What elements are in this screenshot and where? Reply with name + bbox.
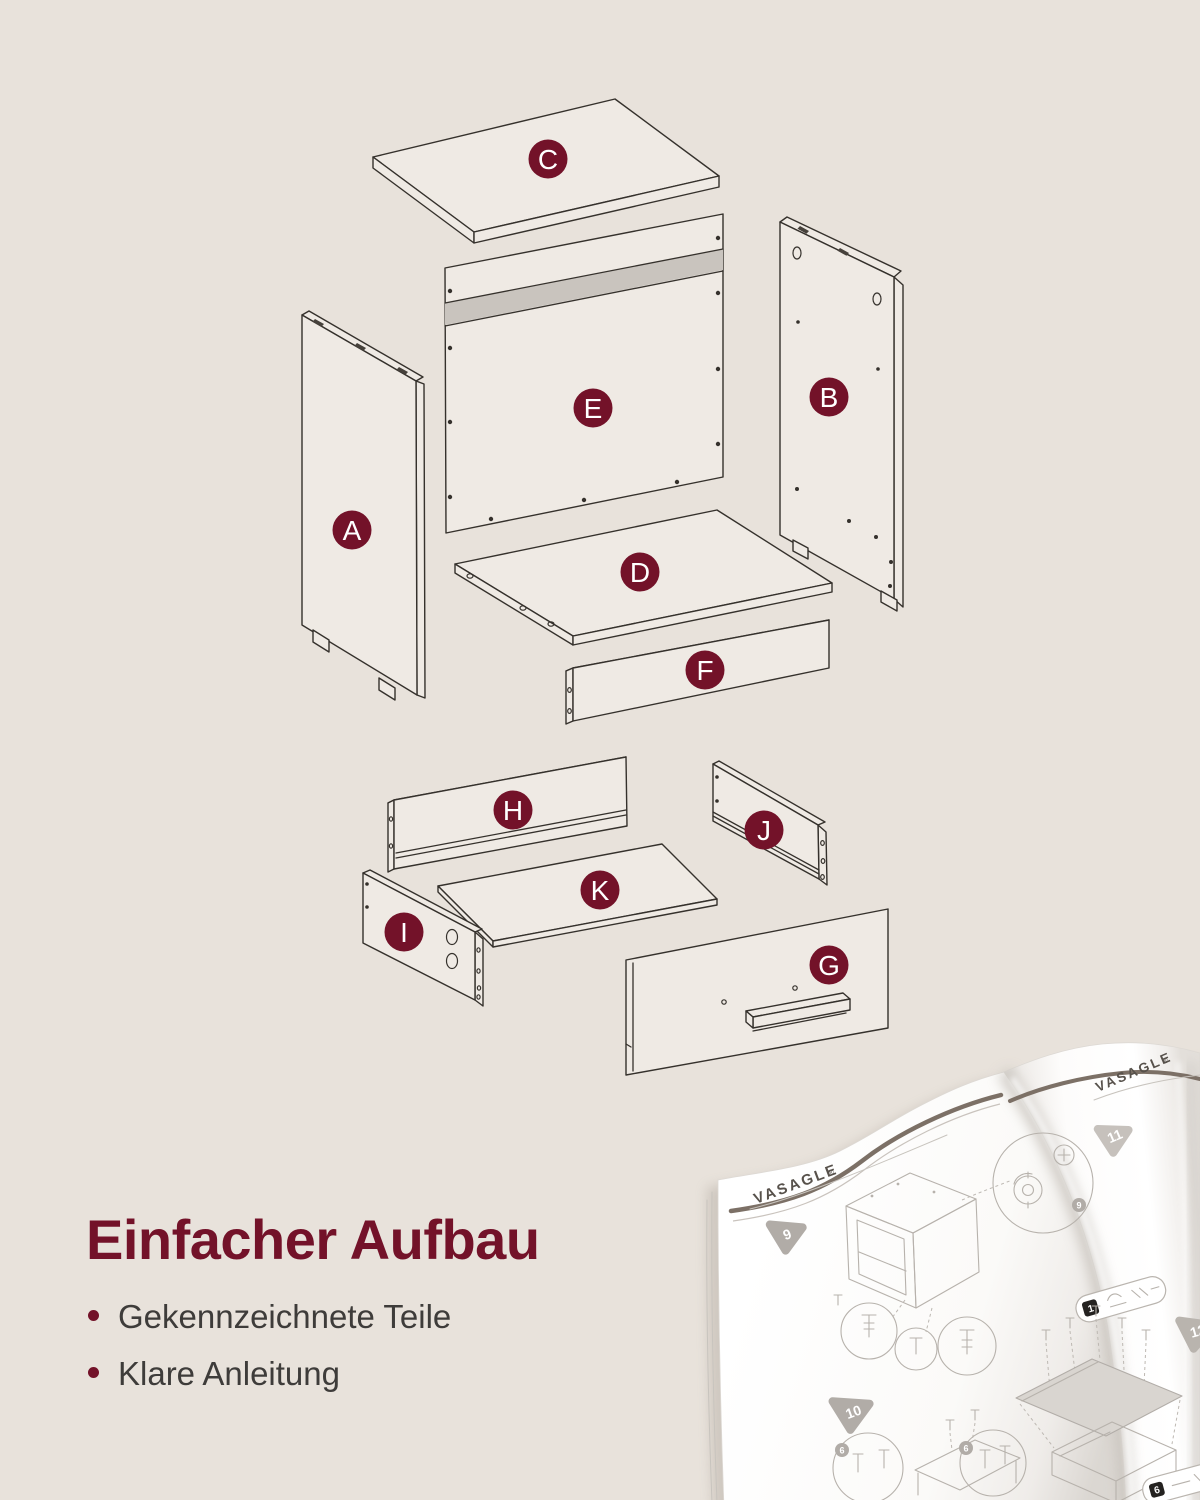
detail-badge-9: 9	[1076, 1201, 1081, 1211]
feature-list: Gekennzeichnete Teile Klare Anleitung	[86, 1296, 726, 1394]
panel-side-a	[302, 311, 425, 700]
badge-a-letter: A	[343, 515, 362, 546]
panel-drawer-front-g	[626, 909, 888, 1075]
instruction-manual: VASAGLE ® 9 9	[707, 1043, 1200, 1500]
badge-f-letter: F	[696, 655, 713, 686]
product-infographic: C E B A D F H J K I G	[0, 0, 1200, 1500]
bullet-dot	[88, 1367, 99, 1378]
badge-c: C	[529, 140, 568, 179]
badge-e-letter: E	[584, 393, 603, 424]
feature-text-2: Klare Anleitung	[118, 1353, 340, 1394]
badge-i-letter: I	[400, 917, 408, 948]
badge-g-letter: G	[818, 950, 840, 981]
panel-drawer-bottom-k	[438, 844, 717, 947]
exploded-diagram: C E B A D F H J K I G	[302, 99, 903, 1075]
badge-h: H	[494, 791, 533, 830]
badge-k-letter: K	[591, 875, 610, 906]
bullet-dot	[88, 1310, 99, 1321]
badge-k: K	[581, 871, 620, 910]
badge-j-letter: J	[757, 815, 771, 846]
detail-badge-6-right: 6	[963, 1444, 968, 1454]
badge-a: A	[333, 511, 372, 550]
panel-side-b	[780, 217, 903, 611]
badge-d-letter: D	[630, 557, 650, 588]
badge-i: I	[385, 913, 424, 952]
feature-text-1: Gekennzeichnete Teile	[118, 1296, 451, 1337]
page-curl-shading	[1190, 1062, 1198, 1500]
badge-h-letter: H	[503, 795, 523, 826]
caption-block: Einfacher Aufbau Gekennzeichnete Teile K…	[86, 1208, 726, 1409]
detail-badge-6-left: 6	[839, 1446, 844, 1456]
badge-b-letter: B	[820, 382, 839, 413]
badge-j: J	[745, 811, 784, 850]
badge-d: D	[621, 553, 660, 592]
badge-g: G	[810, 946, 849, 985]
feature-item-2: Klare Anleitung	[86, 1353, 726, 1394]
badge-b: B	[810, 378, 849, 417]
panel-back-e	[445, 214, 723, 533]
badge-f: F	[686, 651, 725, 690]
badge-e: E	[574, 389, 613, 428]
feature-item-1: Gekennzeichnete Teile	[86, 1296, 726, 1337]
headline: Einfacher Aufbau	[86, 1208, 726, 1272]
badge-c-letter: C	[538, 144, 558, 175]
